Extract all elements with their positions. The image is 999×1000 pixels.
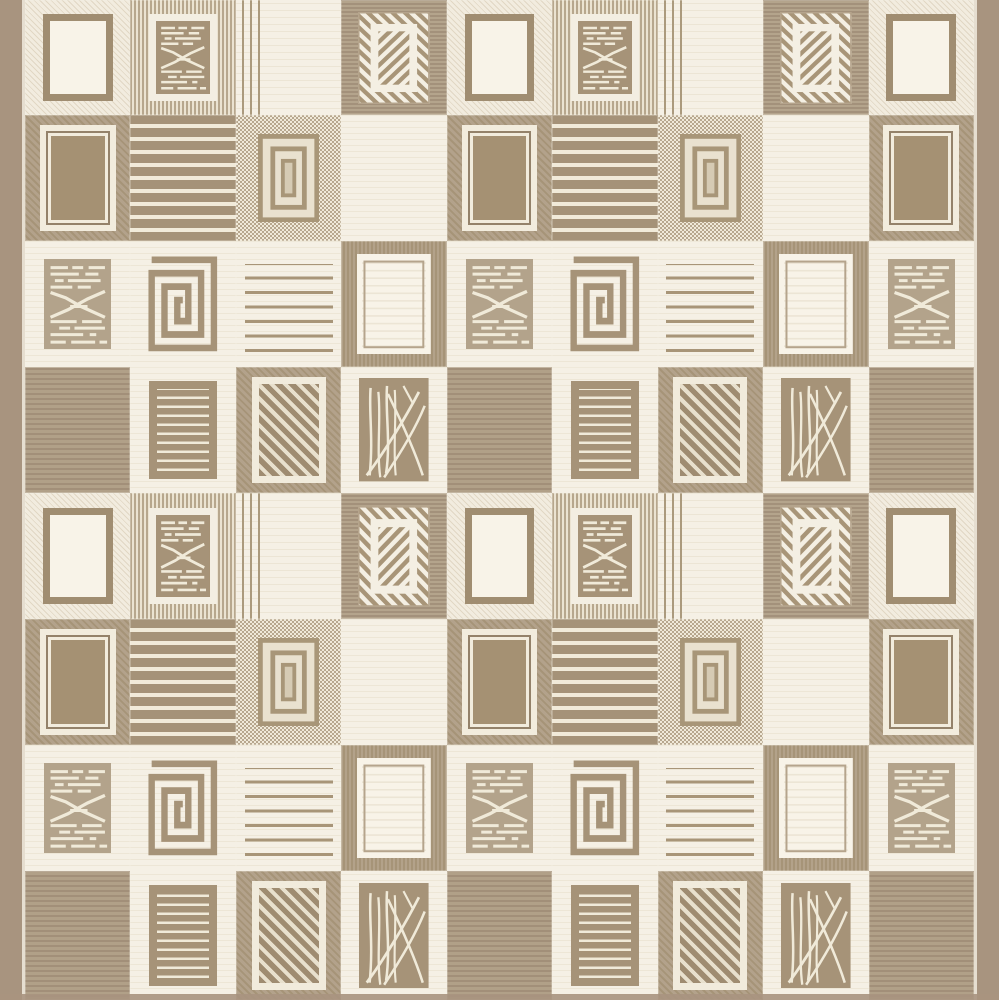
- rug-cell-r5c7-B3: [763, 619, 868, 745]
- rug-cell-r6c5-C1: [552, 745, 657, 871]
- rug-cell-r7c6-D2: [658, 871, 763, 1000]
- herringbone-frame-motif: [358, 506, 430, 607]
- greek-spiral-motif: [570, 256, 640, 352]
- scribble-rect-motif: [359, 378, 429, 481]
- rug-border-right: [974, 0, 999, 1000]
- plain-inset-rect-motif: [357, 254, 431, 355]
- concentric-rectangles-motif: [258, 638, 319, 726]
- text-lines-x-motif: [44, 259, 111, 350]
- rug-cell-r4c0-A0: [25, 493, 130, 619]
- rug-cell-r7c0-D0: [25, 871, 130, 1000]
- rug-cell-r7c4-D0: [447, 871, 552, 1000]
- rug-cell-r7c5-D1: [552, 871, 657, 1000]
- rug-cell-r1c6-B2: [658, 115, 763, 241]
- rug-cell-r2c1-C1: [130, 241, 235, 367]
- rug-cell-r6c2-C2: [236, 745, 341, 871]
- greek-spiral-motif: [148, 256, 218, 352]
- rug-cell-grid: [25, 0, 974, 1000]
- rug-cell-r5c0-B0: [25, 619, 130, 745]
- text-lines-x-motif: [888, 259, 955, 350]
- text-lines-x-motif: [149, 14, 216, 101]
- scribble-rect-motif: [781, 378, 851, 481]
- rug-cell-r4c6-A2: [658, 493, 763, 619]
- rug-cell-r5c1-B1: [130, 619, 235, 745]
- rug-cell-r1c8-B0: [869, 115, 974, 241]
- rug-cell-r4c1-A1: [130, 493, 235, 619]
- rug-cell-r5c6-B2: [658, 619, 763, 745]
- rug-cell-r5c2-B2: [236, 619, 341, 745]
- text-lines-x-motif: [149, 508, 216, 604]
- greek-spiral-motif: [148, 760, 218, 856]
- rug-cell-r1c5-B1: [552, 115, 657, 241]
- rug-cell-r6c3-C3: [341, 745, 446, 871]
- rug-cell-r1c7-B3: [763, 115, 868, 241]
- scribble-rect-motif: [781, 883, 851, 989]
- rug-cell-r4c3-A3: [341, 493, 446, 619]
- text-lines-x-motif: [888, 763, 955, 854]
- rug-cell-r4c4-A0: [447, 493, 552, 619]
- rug-cell-r1c1-B1: [130, 115, 235, 241]
- rug-cell-r3c5-D1: [552, 367, 657, 493]
- rug-border-bottom: [0, 994, 999, 1000]
- text-lines-x-motif: [571, 508, 638, 604]
- rug-cell-r1c2-B2: [236, 115, 341, 241]
- herringbone-frame-motif: [780, 12, 852, 104]
- rug-cell-r5c8-B0: [869, 619, 974, 745]
- rug-cell-r7c3-D3: [341, 871, 446, 1000]
- rug-cell-r1c4-B0: [447, 115, 552, 241]
- rug-cell-r3c7-D3: [763, 367, 868, 493]
- empty-frame-motif: [43, 508, 113, 604]
- rug-cell-r0c4-A0: [447, 0, 552, 115]
- rug-cell-r5c3-B3: [341, 619, 446, 745]
- rug-cell-r3c4-D0: [447, 367, 552, 493]
- text-lines-x-motif: [44, 763, 111, 854]
- solid-framed-rect-motif: [462, 629, 538, 735]
- rug-cell-r2c5-C1: [552, 241, 657, 367]
- solid-framed-rect-motif: [462, 125, 538, 231]
- solid-framed-rect-motif: [40, 125, 116, 231]
- lined-rect-motif: [571, 885, 638, 986]
- solid-framed-rect-motif: [40, 629, 116, 735]
- rug-cell-r1c0-B0: [25, 115, 130, 241]
- plain-inset-rect-motif: [357, 758, 431, 859]
- greek-spiral-motif: [570, 760, 640, 856]
- rug-cell-r0c6-A2: [658, 0, 763, 115]
- herringbone-frame-motif: [358, 12, 430, 104]
- rug-cell-r3c2-D2: [236, 367, 341, 493]
- rug-cell-r3c3-D3: [341, 367, 446, 493]
- rug-cell-r6c6-C2: [658, 745, 763, 871]
- rug-cell-r2c2-C2: [236, 241, 341, 367]
- rug-cell-r5c4-B0: [447, 619, 552, 745]
- rug-cell-r0c7-A3: [763, 0, 868, 115]
- rug-cell-r4c5-A1: [552, 493, 657, 619]
- rug-cell-r0c8-A0: [869, 0, 974, 115]
- scribble-rect-motif: [359, 883, 429, 989]
- herringbone-frame-motif: [780, 506, 852, 607]
- rug-cell-r1c3-B3: [341, 115, 446, 241]
- rug-cell-r6c0-C0: [25, 745, 130, 871]
- rug-cell-r6c1-C1: [130, 745, 235, 871]
- concentric-rectangles-motif: [680, 638, 741, 726]
- rug-cell-r4c8-A0: [869, 493, 974, 619]
- lined-rect-motif: [149, 885, 216, 986]
- rug-cell-r3c6-D2: [658, 367, 763, 493]
- rug-border-left: [0, 0, 25, 1000]
- rug-cell-r0c3-A3: [341, 0, 446, 115]
- rug-cell-r2c6-C2: [658, 241, 763, 367]
- empty-frame-motif: [43, 14, 113, 101]
- empty-frame-motif: [465, 14, 535, 101]
- empty-frame-motif: [886, 14, 956, 101]
- lined-rect-motif: [571, 381, 638, 479]
- rug-cell-r2c3-C3: [341, 241, 446, 367]
- rug-cell-r7c7-D3: [763, 871, 868, 1000]
- rug-cell-r6c7-C3: [763, 745, 868, 871]
- diagonal-lined-rect-motif: [252, 377, 326, 483]
- plain-inset-rect-motif: [779, 254, 853, 355]
- rug-pattern-image: [0, 0, 999, 1000]
- diagonal-lined-rect-motif: [673, 881, 747, 989]
- diagonal-lined-rect-motif: [673, 377, 747, 483]
- text-lines-x-motif: [466, 259, 533, 350]
- solid-framed-rect-motif: [883, 629, 959, 735]
- empty-frame-motif: [886, 508, 956, 604]
- concentric-rectangles-motif: [680, 134, 741, 222]
- empty-frame-motif: [465, 508, 535, 604]
- solid-framed-rect-motif: [883, 125, 959, 231]
- rug-cell-r4c2-A2: [236, 493, 341, 619]
- rug-cell-r2c7-C3: [763, 241, 868, 367]
- rug-cell-r0c0-A0: [25, 0, 130, 115]
- concentric-rectangles-motif: [258, 134, 319, 222]
- rug-cell-r0c2-A2: [236, 0, 341, 115]
- rug-cell-r0c5-A1: [552, 0, 657, 115]
- rug-cell-r3c8-D0: [869, 367, 974, 493]
- text-lines-x-motif: [466, 763, 533, 854]
- rug-cell-r4c7-A3: [763, 493, 868, 619]
- rug-cell-r6c8-C0: [869, 745, 974, 871]
- rug-cell-r7c8-D0: [869, 871, 974, 1000]
- rug-cell-r3c0-D0: [25, 367, 130, 493]
- text-lines-x-motif: [571, 14, 638, 101]
- rug-cell-r7c1-D1: [130, 871, 235, 1000]
- rug-cell-r3c1-D1: [130, 367, 235, 493]
- rug-cell-r5c5-B1: [552, 619, 657, 745]
- lined-rect-motif: [149, 381, 216, 479]
- rug-cell-r2c0-C0: [25, 241, 130, 367]
- rug-cell-r7c2-D2: [236, 871, 341, 1000]
- rug-cell-r0c1-A1: [130, 0, 235, 115]
- rug-cell-r6c4-C0: [447, 745, 552, 871]
- plain-inset-rect-motif: [779, 758, 853, 859]
- diagonal-lined-rect-motif: [252, 881, 326, 989]
- rug-cell-r2c4-C0: [447, 241, 552, 367]
- rug-cell-r2c8-C0: [869, 241, 974, 367]
